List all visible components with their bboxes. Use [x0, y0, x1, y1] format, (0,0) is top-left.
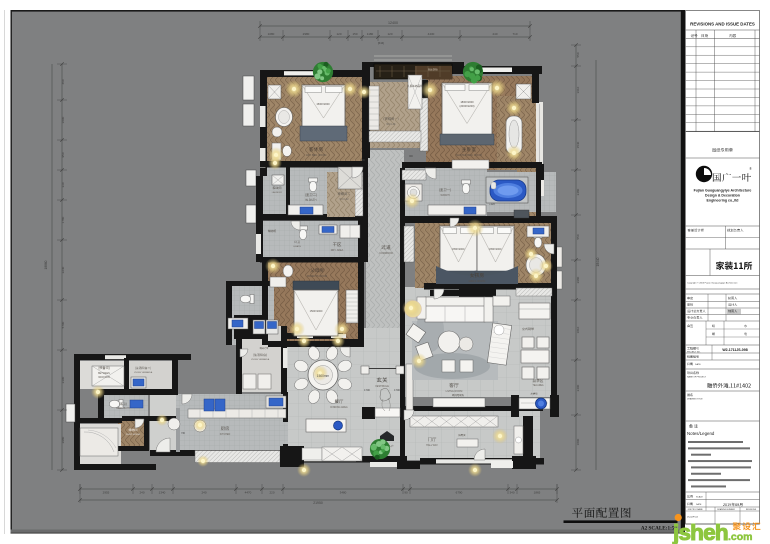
- svg-text:CORRIDOR: CORRIDOR: [379, 252, 393, 255]
- svg-text:REVISIONS AND ISSUE DATES: REVISIONS AND ISSUE DATES: [690, 22, 755, 27]
- svg-text:REST. BATH: REST. BATH: [116, 407, 129, 410]
- svg-text:5700: 5700: [61, 321, 65, 328]
- svg-text:1780: 1780: [61, 216, 65, 223]
- svg-text:1810: 1810: [576, 326, 580, 333]
- svg-text:710: 710: [512, 32, 517, 36]
- svg-text:jsheh: jsheh: [672, 520, 728, 544]
- svg-text:1500X2000: 1500X2000: [310, 310, 323, 313]
- svg-text:3480: 3480: [340, 491, 347, 495]
- svg-text:6790: 6790: [456, 491, 463, 495]
- svg-text:LIVING VERANDA: LIVING VERANDA: [251, 358, 270, 361]
- svg-text:DRY. AREA: DRY. AREA: [331, 249, 344, 252]
- svg-text:12400: 12400: [388, 21, 398, 25]
- svg-text:4430: 4430: [428, 32, 435, 36]
- svg-text:W2-1711JS-098: W2-1711JS-098: [722, 348, 747, 352]
- svg-text:2240: 2240: [61, 266, 65, 273]
- svg-text:460: 460: [61, 79, 65, 84]
- svg-text:950: 950: [61, 152, 65, 157]
- svg-text:1700: 1700: [364, 388, 370, 392]
- svg-text:550: 550: [576, 234, 580, 239]
- svg-text:1350X2000: 1350X2000: [489, 248, 502, 251]
- svg-text:4470: 4470: [245, 491, 252, 495]
- svg-text:GST. BED. ROOM: GST. BED. ROOM: [306, 154, 327, 157]
- svg-text:1500X2000: 1500X2000: [316, 102, 330, 106]
- svg-text:1800X2000: 1800X2000: [460, 100, 474, 104]
- svg-text:W.I.C-01: W.I.C-01: [386, 123, 396, 126]
- svg-text:2480: 2480: [576, 188, 580, 195]
- svg-text:3600: 3600: [61, 116, 65, 123]
- svg-text:2980: 2980: [576, 276, 580, 283]
- svg-text:1340: 1340: [159, 491, 166, 495]
- svg-text:NAME OF PROJECT: NAME OF PROJECT: [687, 376, 707, 379]
- svg-text:HALL WAY: HALL WAY: [426, 444, 438, 447]
- svg-text:1540: 1540: [576, 141, 580, 148]
- svg-text:2955: 2955: [103, 491, 110, 495]
- svg-text:REVISIONS: REVISIONS: [746, 509, 757, 511]
- svg-text:1180: 1180: [367, 32, 374, 36]
- svg-text:1800: 1800: [576, 438, 580, 445]
- svg-text:240: 240: [492, 32, 497, 36]
- svg-text:DINNING AREA: DINNING AREA: [330, 406, 348, 409]
- svg-text:1350X2000: 1350X2000: [452, 248, 465, 251]
- svg-text:3610: 3610: [576, 86, 580, 93]
- svg-text:18860: 18860: [44, 260, 48, 269]
- svg-text:240: 240: [201, 491, 206, 495]
- svg-text:JOB PROJ NAME: JOB PROJ NAME: [687, 508, 703, 511]
- svg-text:2980: 2980: [303, 32, 310, 36]
- svg-text:330: 330: [61, 182, 65, 187]
- svg-text:GIRLS. ROOM: GIRLS. ROOM: [469, 280, 486, 283]
- svg-text:[644]: [644]: [378, 41, 384, 45]
- svg-text:21950: 21950: [313, 501, 323, 505]
- svg-text:Engineering co.,ltd: Engineering co.,ltd: [707, 199, 739, 203]
- svg-text:2980: 2980: [61, 436, 65, 443]
- svg-text:Design & Decoration: Design & Decoration: [705, 194, 740, 198]
- svg-text:LIVING VERANDA: LIVING VERANDA: [134, 371, 153, 374]
- svg-text:LIVING ROOM: LIVING ROOM: [446, 390, 463, 393]
- svg-text:MASTER BED. ROOM: MASTER BED. ROOM: [456, 154, 481, 157]
- svg-text:DUST. ROOM: DUST. ROOM: [126, 434, 140, 436]
- svg-text:3000X3335: 3000X3335: [98, 377, 110, 379]
- svg-text:DRAWING NUMBER: DRAWING NUMBER: [717, 508, 735, 511]
- svg-text:W.BATH: W.BATH: [441, 194, 450, 197]
- svg-text:TEA AREA: TEA AREA: [532, 384, 544, 387]
- svg-text:PARENTS ROOM: PARENTS ROOM: [307, 275, 327, 278]
- svg-text:90: 90: [404, 491, 408, 495]
- svg-text:1865: 1865: [534, 491, 541, 495]
- svg-text:W.I.C-02: W.I.C-02: [340, 199, 350, 201]
- svg-text:Fujian Guoguangyiye Architectu: Fujian Guoguangyiye Architecture: [694, 189, 752, 193]
- svg-text:1500mm: 1500mm: [317, 374, 330, 378]
- svg-text:18440: 18440: [596, 257, 600, 266]
- svg-text:550: 550: [576, 52, 580, 57]
- svg-text:1080: 1080: [268, 32, 275, 36]
- svg-text:LAUNDRY: LAUNDRY: [272, 191, 283, 194]
- svg-text:JS-02/F-04: JS-02/F-04: [687, 517, 699, 519]
- svg-text:DATE: DATE: [696, 503, 702, 506]
- svg-text:2300: 2300: [61, 376, 65, 383]
- svg-text:340: 340: [509, 491, 514, 495]
- svg-text:DATE: DATE: [695, 363, 701, 366]
- svg-text:BETWEEN: BETWEEN: [98, 372, 110, 375]
- svg-text:Copyright © 2005 Fujian Guogua: Copyright © 2005 Fujian Guoguangyiye Arc…: [687, 282, 738, 285]
- svg-text:220: 220: [269, 491, 274, 495]
- svg-text:VESTIBULE: VESTIBULE: [375, 385, 389, 388]
- svg-text:150: 150: [352, 32, 357, 36]
- svg-text:240: 240: [139, 491, 144, 495]
- svg-text:A2 SCALE:1:50: A2 SCALE:1:50: [641, 526, 678, 532]
- svg-text:SCALE: SCALE: [696, 496, 703, 499]
- svg-text:DRAWING TITLE: DRAWING TITLE: [687, 398, 703, 401]
- svg-text:120: 120: [336, 32, 341, 36]
- svg-text:Notes/Legend: Notes/Legend: [687, 431, 715, 436]
- svg-text:120: 120: [387, 32, 392, 36]
- svg-text:PROJECT NO.: PROJECT NO.: [687, 352, 701, 354]
- svg-text:.com: .com: [728, 531, 753, 543]
- svg-text:(2000X2200): (2000X2200): [460, 104, 475, 108]
- svg-text:G.BATH: G.BATH: [293, 245, 301, 248]
- svg-text:KITCHEN: KITCHEN: [220, 433, 231, 436]
- svg-text:2400: 2400: [576, 384, 580, 391]
- svg-text:+120: +120: [489, 203, 495, 206]
- svg-text:1700: 1700: [394, 388, 400, 392]
